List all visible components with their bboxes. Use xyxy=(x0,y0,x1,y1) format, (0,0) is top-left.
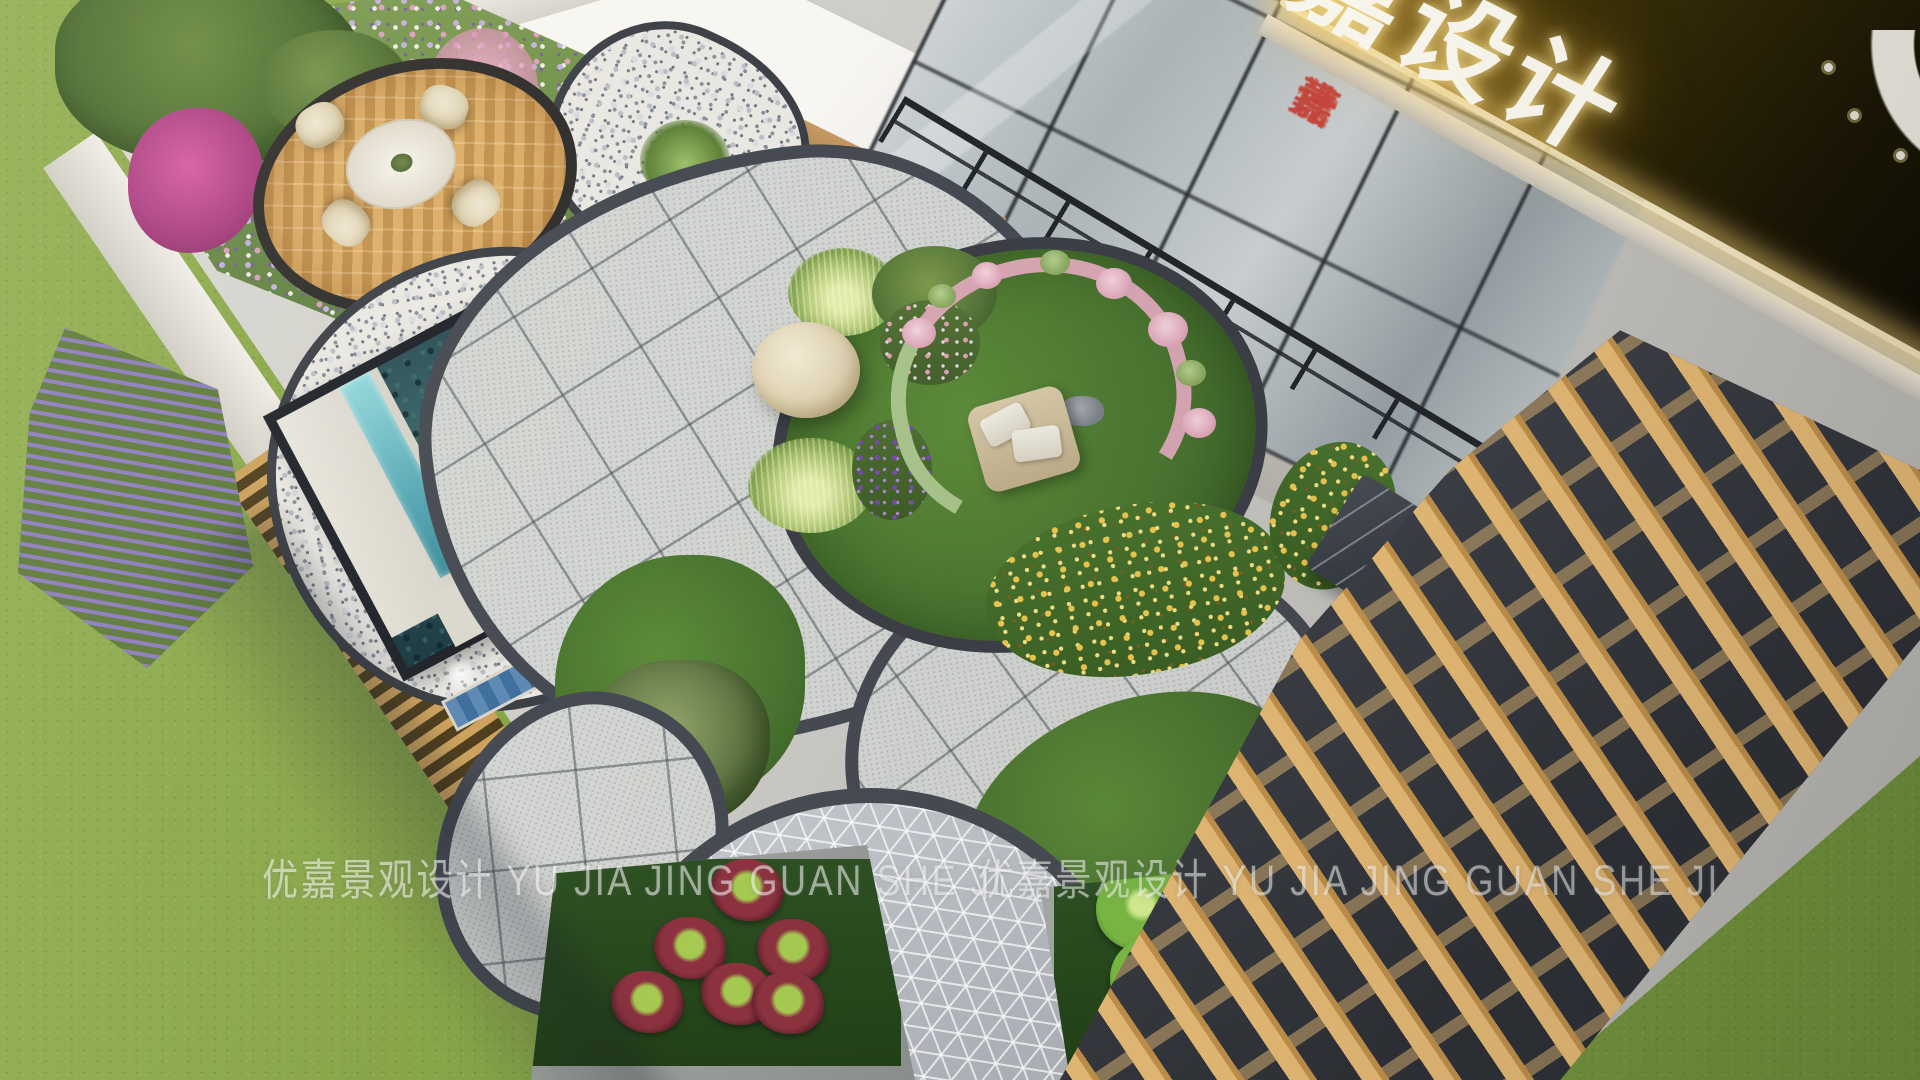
watermark-text: 优嘉景观设计 YU JIA JING GUAN SHE JI xyxy=(262,846,1004,908)
rose-bloom xyxy=(1096,268,1132,299)
rose-bloom xyxy=(902,318,936,348)
corner-scroll-ornament xyxy=(1735,30,1920,270)
cream-pouf-seat xyxy=(752,322,860,418)
seal-sticker-ji: 计 xyxy=(1311,94,1322,105)
red-lettuce xyxy=(752,972,824,1034)
ornament-medallion xyxy=(1893,148,1908,163)
watermark-text: 优嘉景观设计 YU JIA JING GUAN SHE JI xyxy=(978,846,1720,908)
rose-bloom xyxy=(1148,312,1188,347)
arch-foliage xyxy=(1040,250,1070,275)
ornament-medallion xyxy=(1847,108,1862,123)
ornament-medallion xyxy=(1821,60,1836,75)
arch-foliage xyxy=(1176,360,1206,386)
swing-cushion xyxy=(1011,424,1063,462)
rose-bloom xyxy=(1182,408,1216,438)
arch-foliage xyxy=(928,284,956,308)
render-canvas: 优 嘉 设 计 xyxy=(0,0,1920,1080)
rose-bloom xyxy=(972,262,1002,289)
